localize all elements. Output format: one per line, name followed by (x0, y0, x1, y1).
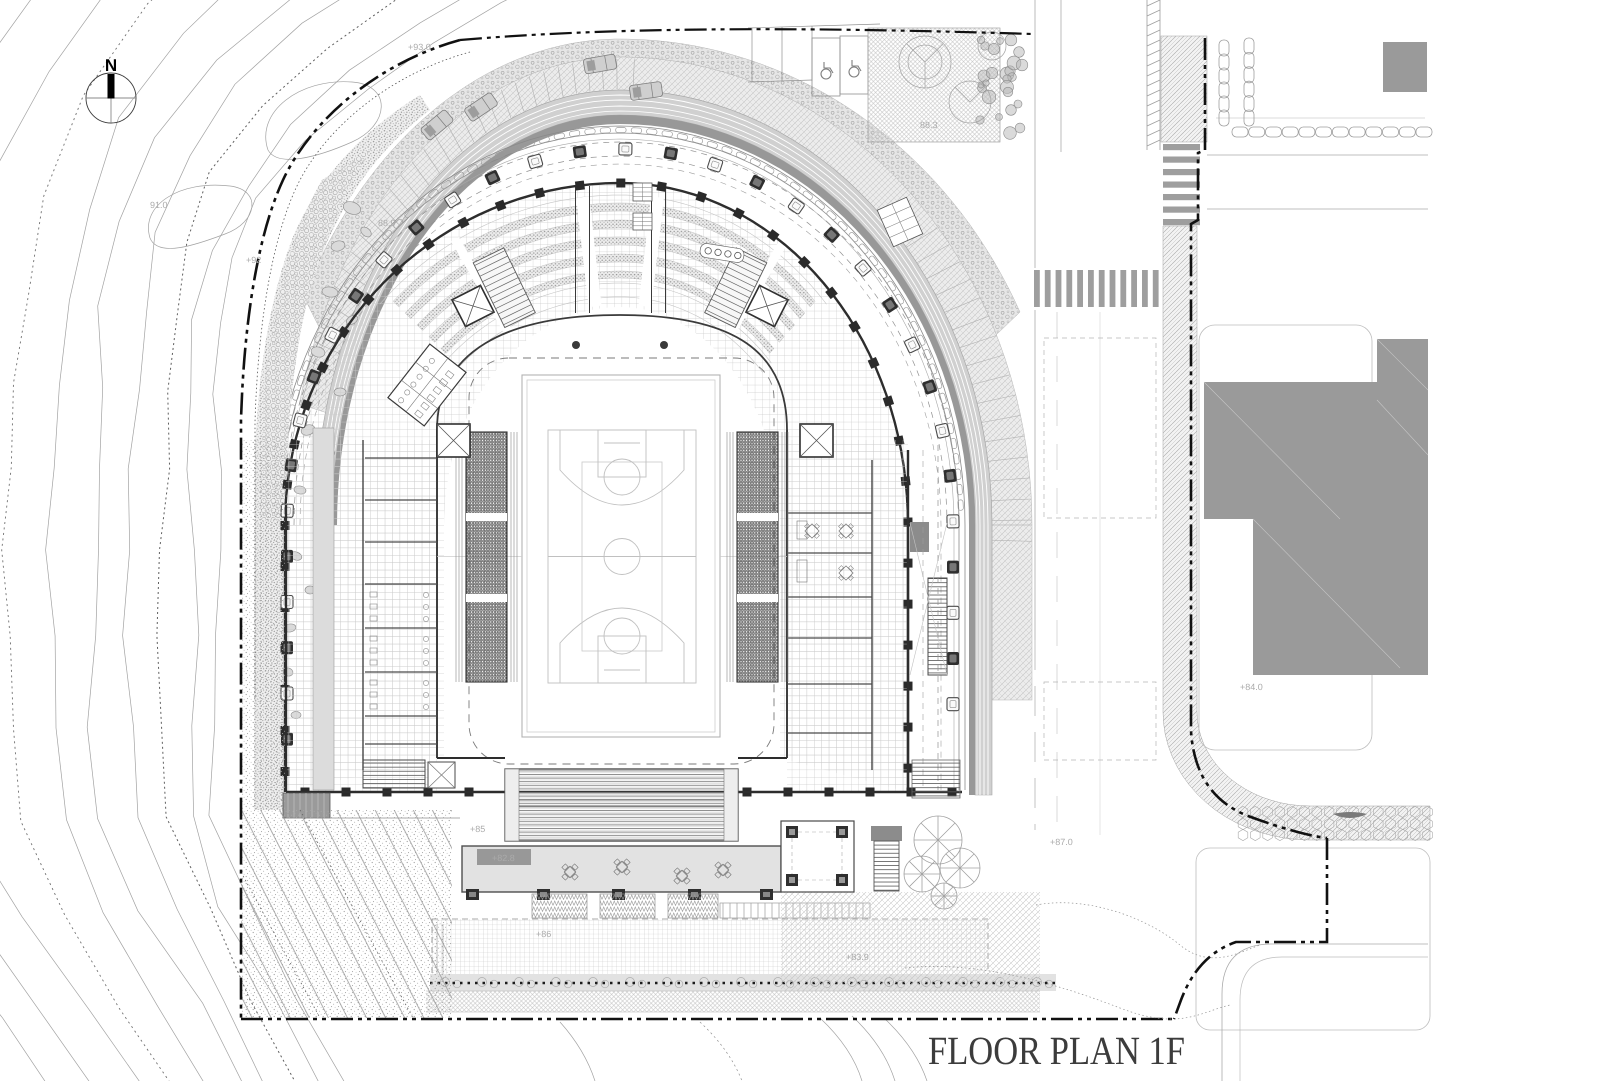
svg-text:+83.9: +83.9 (846, 952, 869, 962)
svg-text:88.3: 88.3 (920, 120, 938, 130)
svg-text:88.9: 88.9 (378, 218, 396, 228)
svg-text:+93.0: +93.0 (408, 42, 431, 52)
svg-text:+84.0: +84.0 (1240, 682, 1263, 692)
svg-text:+92: +92 (246, 255, 261, 265)
svg-text:91.0: 91.0 (150, 200, 168, 210)
svg-text:N: N (105, 56, 117, 75)
svg-text:+86: +86 (536, 929, 551, 939)
svg-text:+82.8: +82.8 (492, 853, 515, 863)
svg-text:+85: +85 (470, 824, 485, 834)
svg-text:FLOOR PLAN 1F: FLOOR PLAN 1F (928, 1028, 1185, 1073)
svg-text:+87.0: +87.0 (1050, 837, 1073, 847)
